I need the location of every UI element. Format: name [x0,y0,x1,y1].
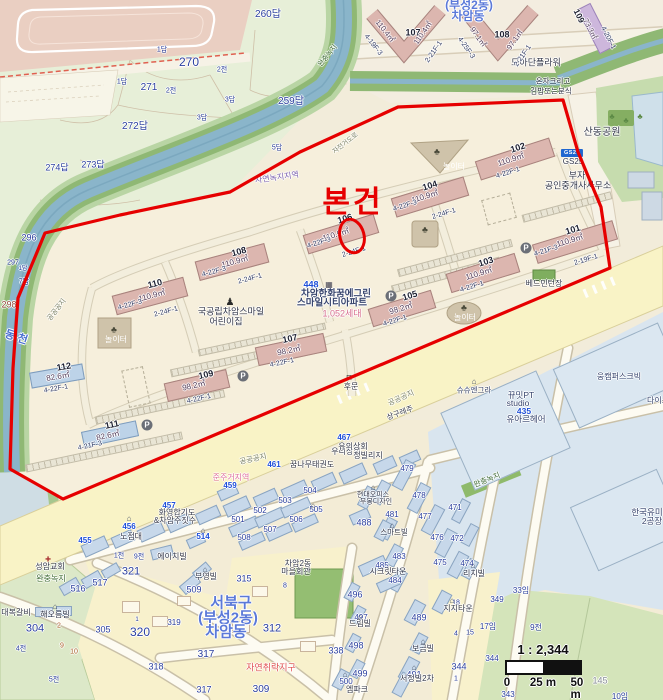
map-label: 504 [303,487,316,495]
map-label: 459 [223,482,236,490]
map-label: 공인중개사사무소 [545,182,611,191]
house-icon: ⌂ [371,484,376,492]
map-label: GS25 [563,158,583,166]
map-label: 296 [21,234,36,243]
map-label: 273답 [81,161,104,170]
map-label: 309 [253,685,270,695]
map-label: 후문 [344,383,359,391]
map-label: 3답 [225,97,235,104]
house [177,596,191,606]
map-label: 9 [60,643,64,650]
house-icon: ⌂ [53,603,58,611]
map-label: 343 [501,691,514,699]
parking-icon: P [386,291,397,302]
map-label: 자연취락지구 [246,664,296,673]
map-label: 475 [433,559,446,567]
map-label: 320 [130,626,150,638]
tree-icon: ♣ [637,113,642,121]
map-label: 정빌리지 [353,452,382,460]
map-label: 481 [385,511,398,519]
map-label: 321 [122,567,140,578]
house-icon: ⌂ [343,671,348,679]
map-canvas: 본건 1 : 2,344 0 25 m 50 m 260답2701답2전2712… [0,0,663,700]
map-label: 507 [263,526,276,534]
tree-icon: ♣ [623,117,628,125]
map-label: 국공립차암스마일 [198,308,264,317]
map-label: 3답 [197,115,207,122]
map-label: 503 [278,497,291,505]
map-label: 시크릿타운 [370,568,407,576]
map-label: &차암주짓수 [154,517,196,525]
map-label: 4 [454,631,458,638]
basemap [0,0,663,700]
map-label: 7답 [19,279,29,286]
playground-icon: ♣ [422,226,428,235]
tree-icon: ♣ [609,113,614,121]
map-label: 477 [418,513,431,521]
map-label: 산동공원 [584,128,621,138]
house [122,601,140,613]
map-label: 보금빌 [412,645,434,653]
map-label: 대복갈비 [1,609,30,617]
map-label: 305 [95,626,110,635]
map-label: 455 [78,537,91,545]
gate-icon: ⊓ [346,374,352,382]
scale-bar-graphic [505,660,582,675]
house-icon: ⌂ [127,515,132,523]
map-label: 319 [167,619,180,627]
house-icon: ⌂ [421,638,426,646]
map-label: 471 [448,504,461,512]
map-label: 10 [70,649,78,656]
apartment-sign-icon: ▦ [325,281,333,289]
map-label: 498 [348,642,363,651]
map-label: 슈슈엔그라 [457,386,492,394]
house [152,616,168,627]
playground-icon: ♣ [434,148,440,157]
map-label: 260답 [255,10,281,20]
map-label: 다이소 [647,397,663,405]
map-label: 차암동 [205,625,246,640]
map-label: 2공장 [642,517,662,526]
map-label: 현대오피스 [357,492,389,499]
map-label: 놀이터 [105,336,127,344]
map-label: 17임 [480,623,496,631]
map-label: 5답 [272,145,282,152]
map-label: 부자 [569,172,586,181]
parking-icon: P [521,243,532,254]
map-label: 33임 [513,587,529,595]
map-label: 312 [263,624,281,635]
map-label: 509 [186,586,201,595]
map-label: 베드민턴장 [526,280,563,288]
map-label: 엠파크 [346,686,368,694]
map-label: 2전 [166,88,176,95]
map-label: 리치빌 [463,570,485,578]
map-label: 유의상회 [338,443,367,451]
map-label: 웅캠퍼스크빅 [597,373,641,381]
scale-tick-25: 25 m [530,677,556,689]
map-label: 297 [7,260,19,267]
house-icon: ⌂ [471,562,476,570]
scale-tick-50: 50 m [571,677,588,700]
map-label: 무봉디자인 [360,499,392,506]
playground-icon: ♣ [461,304,467,313]
map-label: 1전 [114,553,124,560]
subject-label: 본건 [322,177,383,221]
map-label: 놀이터 [454,314,476,322]
map-label: 456 [122,523,135,531]
map-label: 476 [430,534,443,542]
map-label: 9전 [134,554,144,561]
map-label: 496 [347,591,362,600]
map-label: 272답 [122,122,148,132]
daycare-icon: ♟ [226,298,235,308]
gs25-badge: GS25 [561,149,583,157]
map-label: 5전 [49,677,59,684]
map-label: 15 [466,630,474,637]
map-label: 10임 [612,693,628,700]
map-label: 506 [289,516,302,524]
map-label: 스마일시티아파트 [297,298,367,308]
map-label: 516 [70,585,85,594]
map-label: 서북구 [210,596,251,611]
church-icon: ✚ [45,557,51,564]
map-label: 서정빌2차 [400,675,434,683]
map-label: 478 [412,492,425,500]
map-label: 지지타운 [443,605,472,613]
house-icon: ⌂ [450,597,455,605]
map-label: 472 [450,535,463,543]
map-label: 298 [1,301,16,310]
map-label: 8 [283,583,287,590]
map-label: 467 [337,434,350,442]
map-label: 부영빌 [195,573,217,581]
map-label: 508 [237,534,250,542]
map-label: 온자크리고 [536,77,571,85]
map-label: 드림빌 [349,620,371,628]
map-label: 344 [451,663,466,672]
map-label: 성암교회 [35,563,64,571]
map-label: 꿈나무태권도 [290,461,334,469]
house-icon: ⌂ [390,522,395,530]
playground-icon: ♣ [111,326,117,335]
map-label: 해오름빌 [40,611,69,619]
scale-ratio: 1 : 2,344 [500,642,586,657]
map-label: 4전 [16,646,26,653]
map-label: 9전 [530,624,542,632]
map-label: 김밥또는분식 [530,87,571,95]
house-icon: ⌂ [201,527,206,535]
house-icon: ⌂ [358,613,363,621]
map-label: 2전 [217,67,227,74]
map-label: 노점대 [120,533,142,541]
map-label: 놀이터 [443,163,465,171]
house [300,641,316,652]
map-label: 461 [267,461,280,469]
map-label: 완충녹지 [36,575,65,583]
house-icon: ⌂ [311,502,316,510]
house-icon: ⌂ [203,566,208,574]
map-label: 에이치빌 [157,553,186,561]
map-label: 2 [57,623,61,630]
map-label: 349 [490,596,503,604]
map-label: 어린이집 [209,318,242,327]
house-icon: ⌂ [412,664,417,672]
map-label: 315 [236,575,251,584]
map-label: 270 [179,56,199,68]
map-label: 318 [148,663,163,672]
map-label: 1답 [19,266,28,272]
parking-icon: P [238,371,249,382]
map-label: 488 [356,519,371,528]
map-label: 1 [135,617,138,623]
map-label: 1답 [117,79,127,86]
map-label: 479 [400,465,413,473]
map-label: 483 [392,553,405,561]
map-label: 유아르헤어 [506,415,545,424]
map-label: 517 [92,579,107,588]
map-label: 344 [485,655,498,663]
map-label: 마을회관 [281,568,310,576]
map-label: 차암동 [451,10,484,22]
map-label: 317 [196,686,211,695]
map-label: 271 [141,83,158,93]
map-label: 499 [352,670,367,679]
map-label: 108 [494,31,509,40]
map-label: 489 [411,614,426,623]
map-label: 1,052세대 [322,310,361,319]
map-label: 317 [198,650,215,660]
scale-tick-0: 0 [504,677,510,689]
map-label: 259답 [278,97,304,107]
map-label: 274답 [45,164,68,173]
scale-bar: 1 : 2,344 0 25 m 50 m [500,642,596,691]
map-label: 484 [388,577,401,585]
map-label: 502 [253,507,266,515]
map-label: 304 [26,624,44,635]
house [252,586,268,597]
map-label: 1답 [157,47,167,54]
house-icon: ⌂ [472,378,477,386]
map-label: 501 [231,516,244,524]
parking-icon: P [142,420,153,431]
map-label: 1 [454,676,458,683]
map-label: 338 [328,647,343,656]
